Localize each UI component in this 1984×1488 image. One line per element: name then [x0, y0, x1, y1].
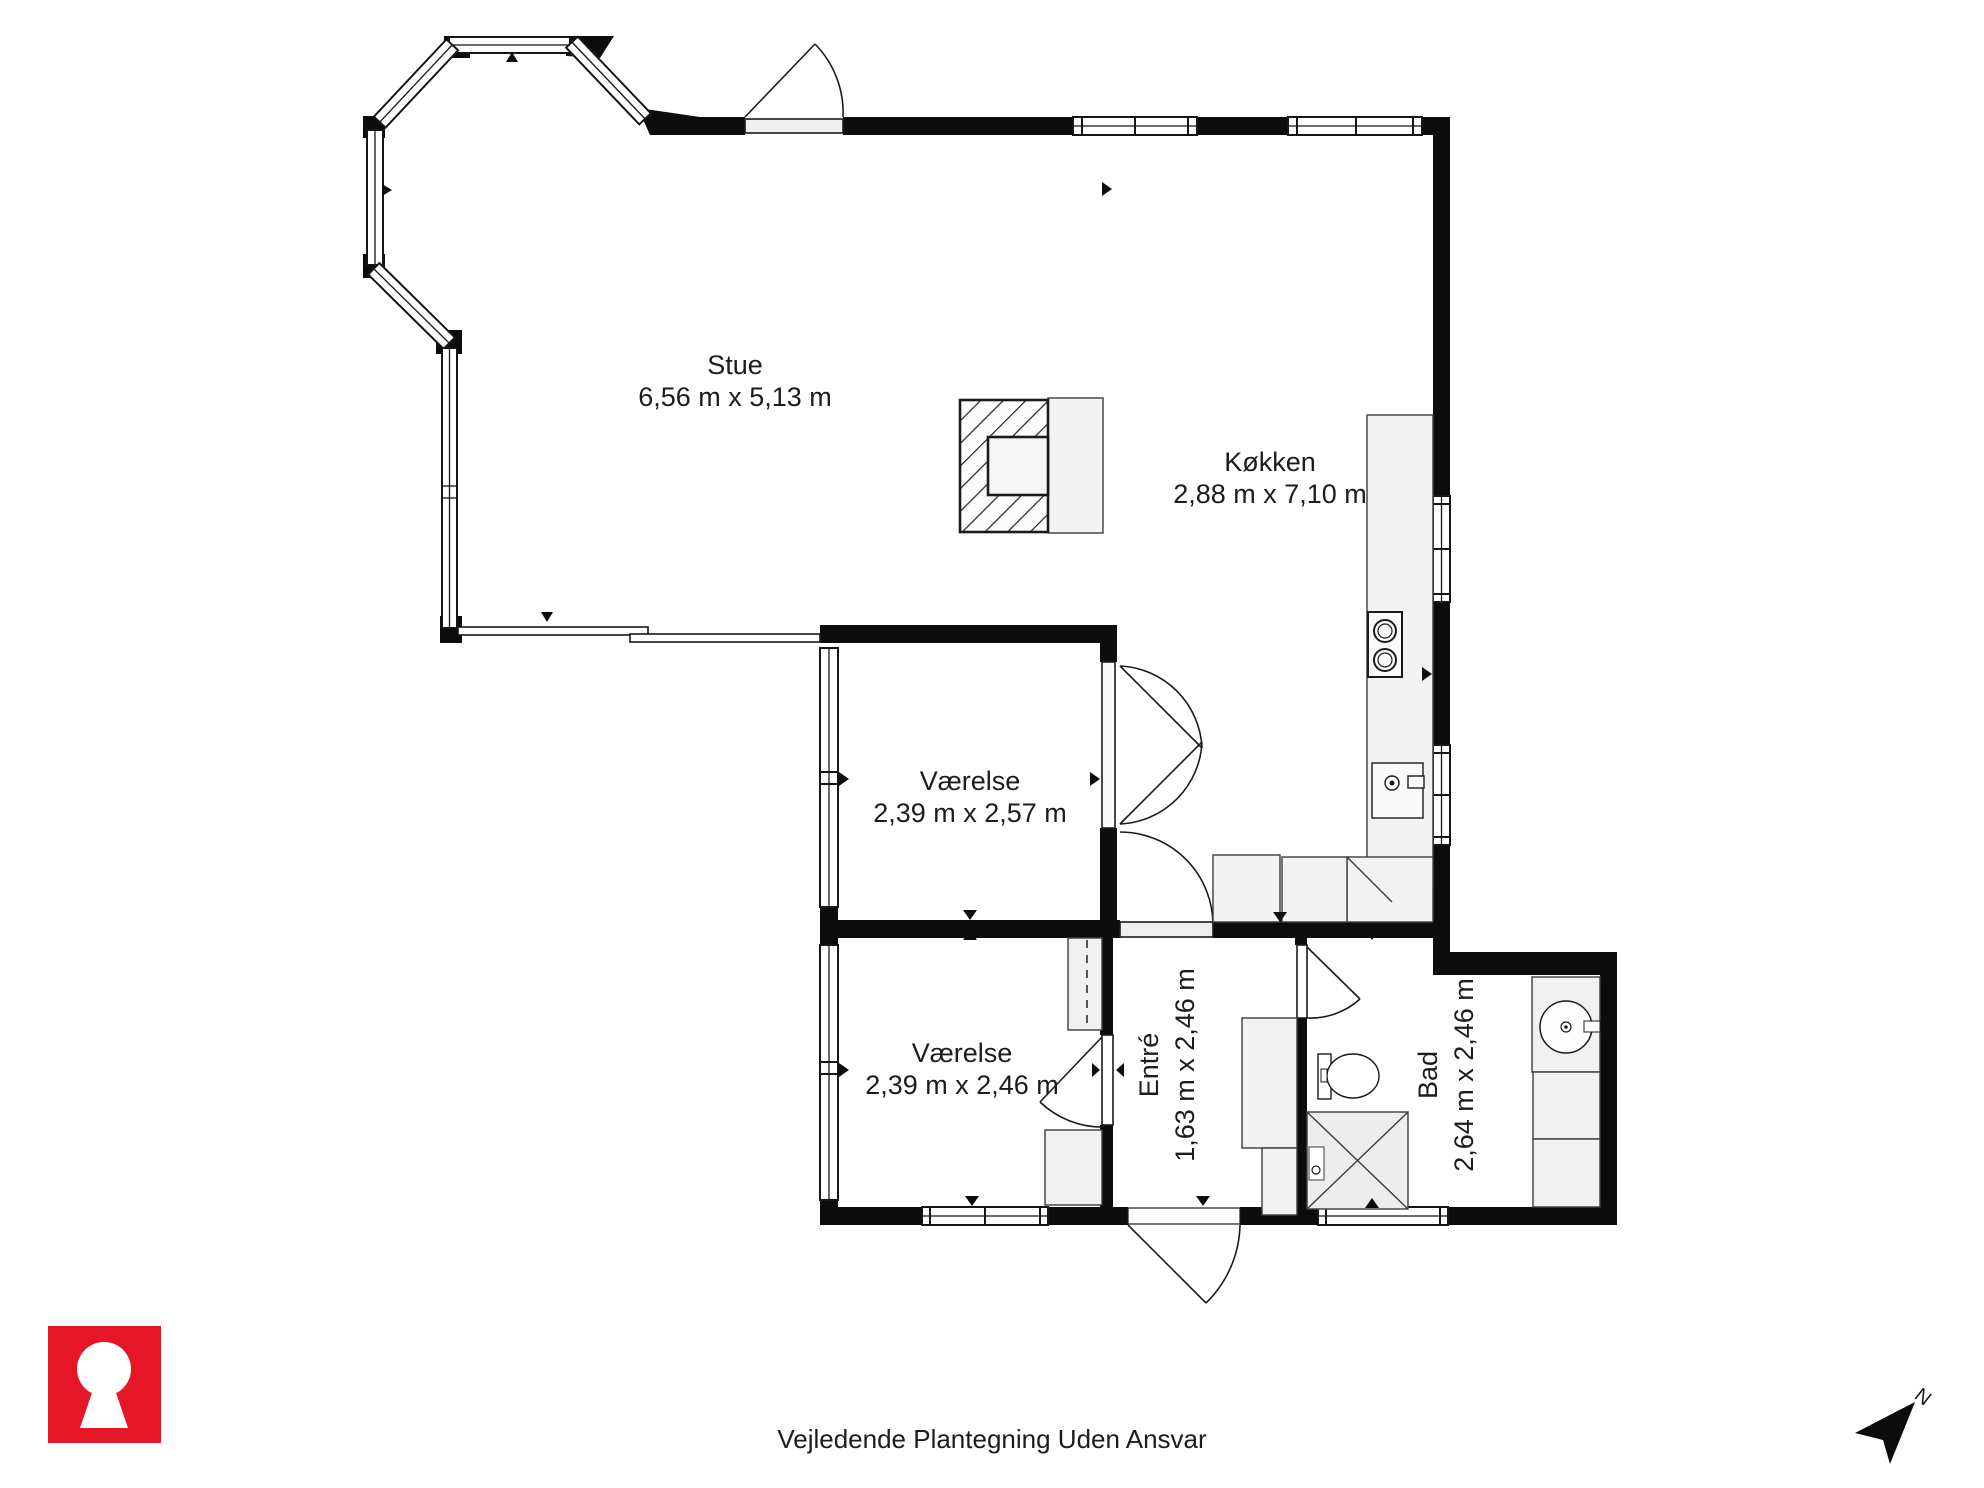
room-label-entre: Entré 1,63 m x 2,46 m [1134, 968, 1200, 1162]
room-label-stue: Stue 6,56 m x 5,13 m [638, 350, 832, 412]
svg-text:Stue: Stue [707, 350, 763, 380]
kitchen-sink [1372, 763, 1424, 818]
bay-window-upper-left [374, 39, 458, 127]
room-label-bad: Bad 2,64 m x 2,46 m [1413, 978, 1479, 1172]
vaerelse1-door [1102, 662, 1202, 828]
front-door [1128, 1208, 1240, 1303]
svg-text:2,39 m x 2,57 m: 2,39 m x 2,57 m [873, 798, 1067, 828]
floorplan-page: Stue 6,56 m x 5,13 m Køkken 2,88 m x 7,1… [0, 0, 1984, 1488]
stue-entry-door [745, 44, 843, 133]
vaerelse2-cabinet [1045, 1130, 1102, 1205]
top-window-1 [1073, 117, 1197, 135]
vaerelse2-niche [1068, 938, 1102, 1030]
svg-text:6,56 m x 5,13 m: 6,56 m x 5,13 m [638, 382, 832, 412]
stue-west-window [442, 348, 457, 628]
svg-text:Køkken: Køkken [1224, 447, 1316, 477]
toilet [1318, 1054, 1379, 1099]
svg-text:1,63 m x 2,46 m: 1,63 m x 2,46 m [1170, 968, 1200, 1162]
keyhole-icon [77, 1342, 131, 1428]
room-label-kokken: Køkken 2,88 m x 7,10 m [1173, 447, 1367, 509]
bay-window-top [449, 37, 570, 53]
room-label-vaerelse-2: Værelse 2,39 m x 2,46 m [865, 1038, 1059, 1100]
entre-cabinet [1242, 1018, 1297, 1215]
bay-window-left [367, 130, 383, 265]
svg-text:Entré: Entré [1134, 1033, 1164, 1098]
room-label-vaerelse-1: Værelse 2,39 m x 2,57 m [873, 766, 1067, 828]
kitchen-east-window-2 [1433, 745, 1450, 845]
stove [1368, 612, 1402, 677]
compass: N [1855, 1384, 1935, 1464]
north-arrow-icon [1855, 1402, 1915, 1464]
vaerelse1-west-window [820, 648, 838, 907]
bathroom-vanity [1532, 977, 1600, 1207]
kitchen-east-window-1 [1433, 496, 1450, 602]
svg-text:Bad: Bad [1413, 1051, 1443, 1099]
svg-text:2,39 m x 2,46 m: 2,39 m x 2,46 m [865, 1070, 1059, 1100]
bad-door [1297, 945, 1360, 1018]
floorplan-drawing: Stue 6,56 m x 5,13 m Køkken 2,88 m x 7,1… [0, 0, 1984, 1488]
vaerelse2-west-window [820, 945, 838, 1200]
svg-text:2,88 m x 7,10 m: 2,88 m x 7,10 m [1173, 479, 1367, 509]
vaerelse2-south-window [922, 1207, 1048, 1225]
shower [1307, 1112, 1408, 1209]
bay-window-lower-left [368, 263, 455, 349]
disclaimer-text: Vejledende Plantegning Uden Ansvar [777, 1424, 1207, 1454]
svg-text:2,64 m x 2,46 m: 2,64 m x 2,46 m [1449, 978, 1479, 1172]
brand-logo [48, 1326, 161, 1443]
svg-text:Værelse: Værelse [920, 766, 1021, 796]
svg-text:Værelse: Værelse [912, 1038, 1013, 1068]
top-window-2 [1288, 117, 1422, 135]
north-label: N [1910, 1384, 1935, 1410]
bay-window-upper-right [566, 37, 651, 125]
fireplace [960, 398, 1103, 533]
kitchen-hall-door [1120, 832, 1213, 937]
stue-sliding-door [458, 627, 820, 642]
